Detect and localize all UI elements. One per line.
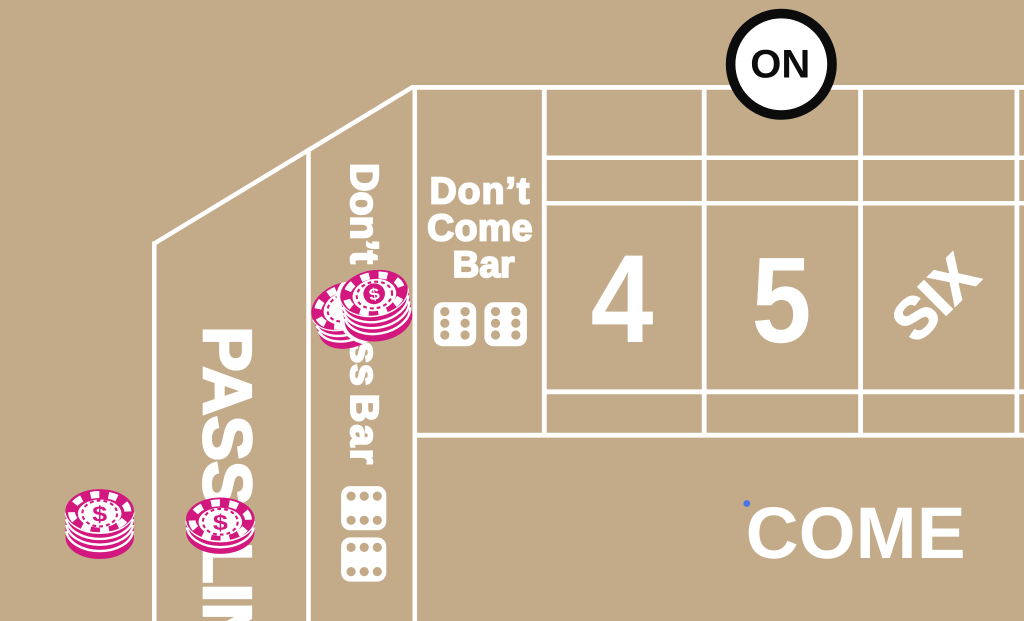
svg-text:Don’t: Don’t — [342, 163, 386, 264]
svg-text:ON: ON — [750, 43, 810, 87]
svg-text:Don’t: Don’t — [430, 170, 531, 212]
svg-text:PASS: PASS — [189, 326, 265, 506]
svg-text:Bar: Bar — [452, 243, 514, 285]
svg-text:COME: COME — [746, 493, 966, 574]
svg-text:Bar: Bar — [342, 394, 386, 466]
svg-text:5: 5 — [752, 232, 812, 368]
svg-text:4: 4 — [591, 228, 654, 369]
svg-text:LINE: LINE — [189, 542, 265, 621]
